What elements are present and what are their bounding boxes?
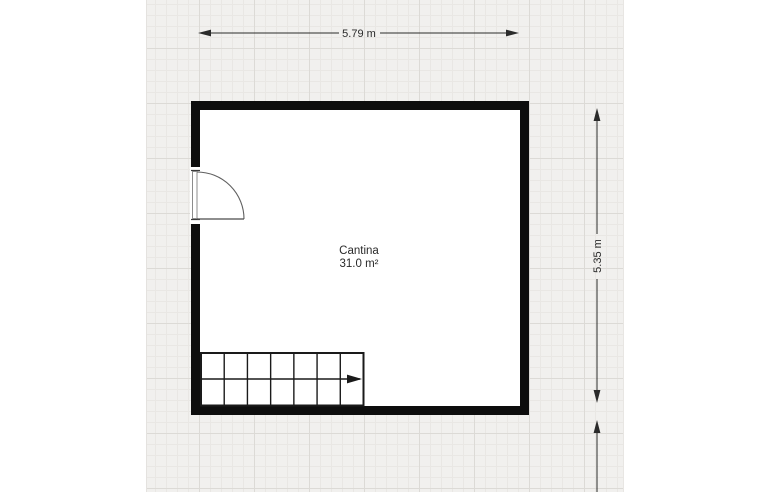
dimension-height-label: 5.35 m xyxy=(592,239,604,273)
stairs[interactable] xyxy=(201,353,364,406)
dimension-offscreen-partial[interactable] xyxy=(594,420,601,492)
arrowhead-right-icon xyxy=(506,30,519,37)
arrowhead-down-icon xyxy=(594,390,601,403)
arrowhead-up-icon xyxy=(594,420,601,433)
dimension-width-label: 5.79 m xyxy=(342,28,376,40)
dimension-height[interactable]: 5.35 m xyxy=(592,108,604,403)
door-jamb xyxy=(193,172,198,219)
room-area-label: 31.0 m² xyxy=(340,258,379,270)
dimension-width[interactable]: 5.79 m xyxy=(198,28,519,40)
arrowhead-left-icon xyxy=(198,30,211,37)
floorplan-drawing: 5.79 m 5.35 m Cantina 31.0 m² xyxy=(0,0,764,492)
arrowhead-up-icon xyxy=(594,108,601,121)
room-name-label: Cantina xyxy=(339,245,379,257)
floorplan-viewport: 5.79 m 5.35 m Cantina 31.0 m² xyxy=(0,0,764,492)
